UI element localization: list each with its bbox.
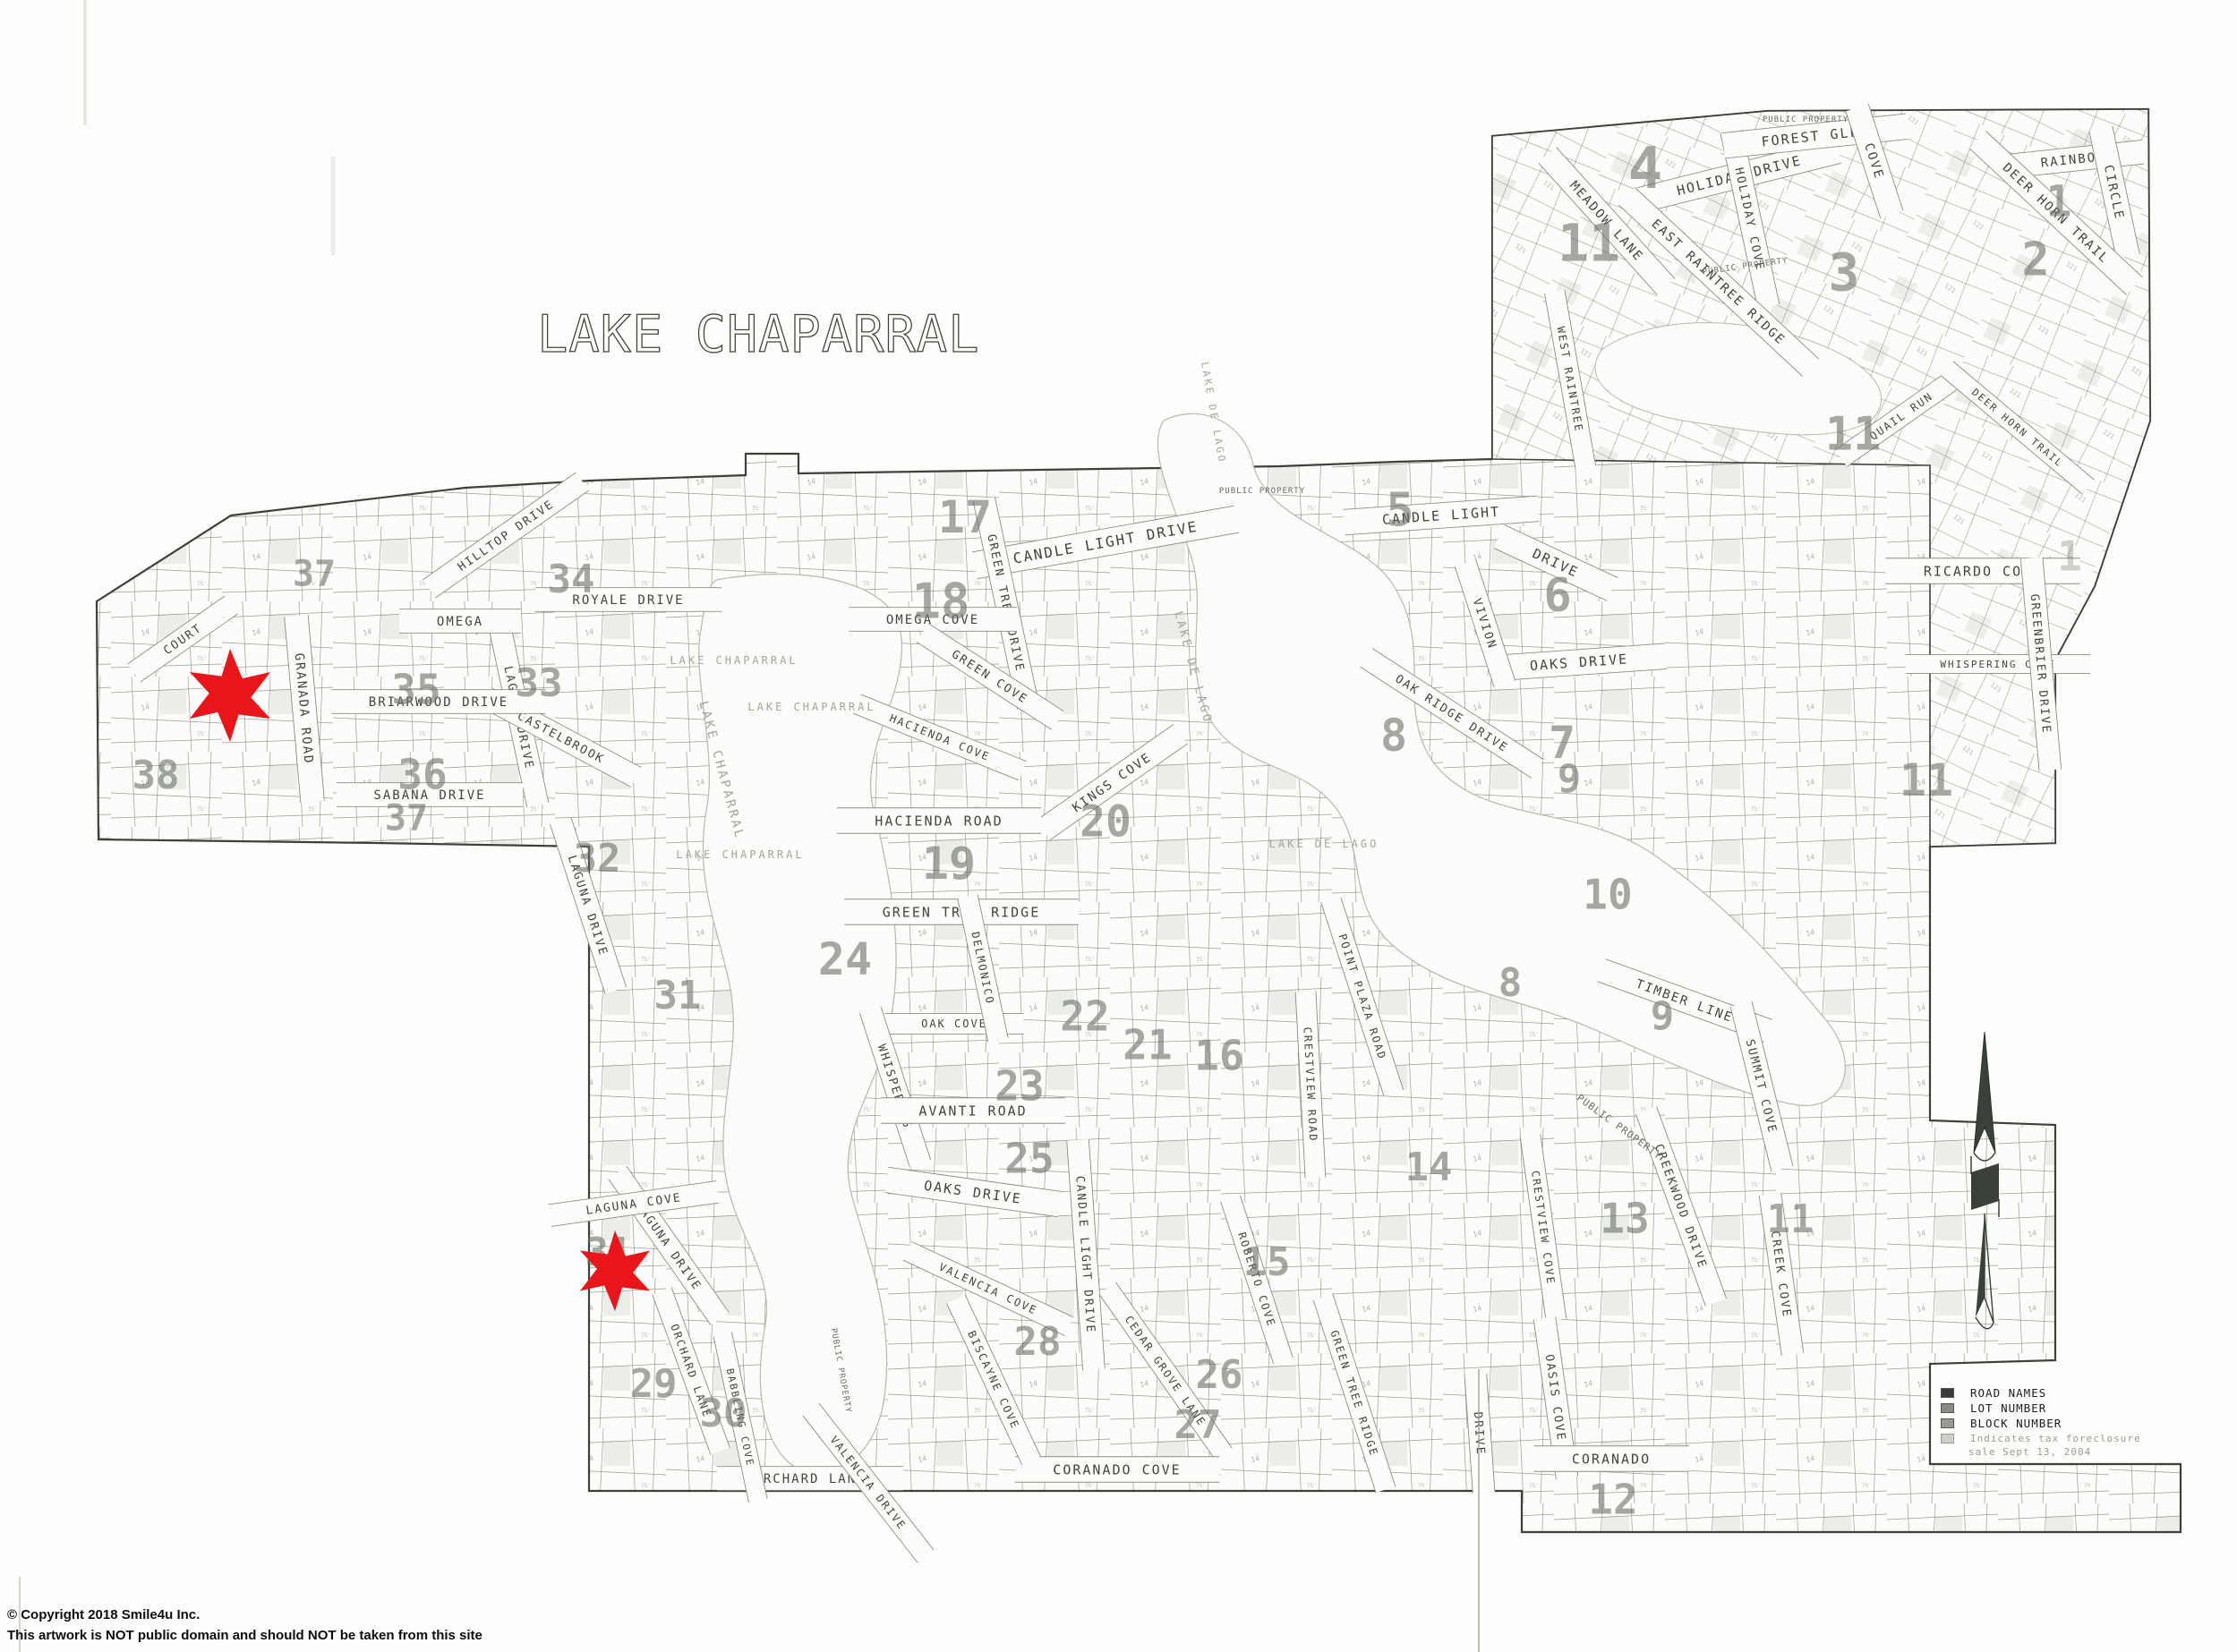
legend-row-road-names: ROAD NAMES — [1941, 1385, 2209, 1400]
legend-label: LOT NUMBER — [1970, 1401, 2046, 1415]
block-number: 12 — [1588, 1476, 1637, 1524]
block-number: 15 — [1243, 1239, 1291, 1285]
block-number: 17 — [938, 491, 992, 543]
road-label: RICARDO COVE — [1885, 558, 2079, 584]
block-number: 25 — [1004, 1135, 1054, 1183]
block-number: 11 — [1900, 754, 1953, 806]
block-number-swatch — [1941, 1418, 1954, 1428]
lake-label: LAKE CHAPARRAL — [676, 848, 804, 861]
block-number: 2 — [2021, 234, 2049, 287]
svg-text:CORANADO COVE: CORANADO COVE — [1053, 1461, 1181, 1477]
foreclosure-note-line2: sale Sept 13, 2004 — [1968, 1446, 2209, 1458]
foreclosure-note-line1: Indicates tax foreclosure — [1970, 1433, 2141, 1444]
block-number: 6 — [1543, 569, 1571, 623]
road-label: OMEGA — [399, 609, 521, 634]
block-number: 35 — [391, 666, 440, 714]
block-number: 13 — [1600, 1195, 1649, 1243]
block-number: 4 — [1628, 136, 1663, 202]
lake-label: LAKE CHAPARRAL — [747, 701, 875, 713]
svg-text:CORANADO: CORANADO — [1572, 1451, 1651, 1467]
legend-row-block-number: BLOCK NUMBER — [1941, 1416, 2209, 1430]
block-number: 3 — [1829, 243, 1860, 303]
lake-label: LAKE DE LAGO — [1269, 838, 1379, 850]
legend: ROAD NAMES LOT NUMBER BLOCK NUMBER Indic… — [1941, 1385, 2209, 1458]
svg-text:OMEGA: OMEGA — [437, 615, 483, 629]
block-number: 36 — [397, 751, 447, 799]
legend-label: ROAD NAMES — [1970, 1386, 2046, 1400]
block-number: 8 — [1380, 710, 1407, 762]
svg-text:OAK COVE: OAK COVE — [921, 1018, 987, 1030]
plat-map: 14 75' 121 HOLIDAY DRIVEHOLIDAY COVEFORE… — [0, 0, 2237, 1652]
block-number: 18 — [911, 573, 969, 629]
block-number: 21 — [1123, 1021, 1172, 1069]
road-label: WHISPERING COVE — [1906, 655, 2090, 674]
area-label: PUBLIC PROPERTY — [1763, 115, 1849, 124]
block-number: 26 — [1196, 1352, 1243, 1398]
legend-row-foreclosure: Indicates tax foreclosure — [1941, 1431, 2209, 1445]
block-number: 9 — [1558, 756, 1582, 802]
block-number: 33 — [516, 660, 563, 706]
block-number: 19 — [922, 838, 976, 890]
road-names-swatch — [1941, 1388, 1954, 1398]
copyright-line: © Copyright 2018 Smile4u Inc. — [7, 1607, 482, 1622]
copyright-footer: © Copyright 2018 Smile4u Inc. This artwo… — [7, 1607, 482, 1643]
block-number: 31 — [654, 973, 702, 1018]
road-label: CORANADO — [1534, 1446, 1689, 1472]
block-number: 38 — [132, 753, 180, 798]
lake-label: LAKE CHAPARRAL — [670, 654, 798, 667]
block-number: 32 — [574, 836, 621, 881]
map-title: LAKE CHAPARRAL — [537, 305, 979, 364]
block-number: 27 — [1174, 1402, 1222, 1448]
block-number: 20 — [1080, 796, 1131, 847]
block-number: 11 — [1825, 408, 1882, 462]
area-label: PUBLIC PROPERTY — [1219, 487, 1305, 496]
block-number: 5 — [1386, 484, 1413, 538]
block-number: 1 — [2057, 532, 2082, 581]
block-number: 16 — [1194, 1032, 1243, 1080]
block-number: 37 — [293, 554, 336, 595]
road-label: HACIENDA ROAD — [837, 808, 1041, 834]
block-number: 8 — [1498, 960, 1523, 1006]
block-number: 11 — [1767, 1196, 1814, 1242]
foreclosure-swatch — [1941, 1434, 1954, 1443]
svg-text:HACIENDA ROAD: HACIENDA ROAD — [875, 813, 1003, 829]
block-number: 29 — [630, 1361, 678, 1407]
block-number: 9 — [1651, 993, 1675, 1039]
block-number: 14 — [1405, 1145, 1453, 1190]
scanned-plat-map-page: 14 75' 121 HOLIDAY DRIVEHOLIDAY COVEFORE… — [0, 0, 2237, 1652]
disclaimer-line: This artwork is NOT public domain and sh… — [7, 1628, 482, 1643]
block-number: 37 — [385, 798, 428, 839]
block-number: 10 — [1583, 871, 1632, 919]
block-number: 34 — [548, 557, 595, 602]
road-label: CORANADO COVE — [1015, 1457, 1219, 1483]
lot-number-swatch — [1941, 1403, 1954, 1413]
block-number: 1 — [2046, 176, 2072, 226]
block-number: 24 — [818, 933, 872, 985]
block-number: 30 — [700, 1391, 747, 1436]
block-number: 11 — [1558, 213, 1620, 274]
block-number: 28 — [1014, 1319, 1062, 1365]
block-number: 22 — [1060, 992, 1109, 1041]
block-number: 23 — [995, 1062, 1044, 1111]
legend-row-lot-number: LOT NUMBER — [1941, 1401, 2209, 1415]
legend-label: BLOCK NUMBER — [1970, 1417, 2062, 1430]
